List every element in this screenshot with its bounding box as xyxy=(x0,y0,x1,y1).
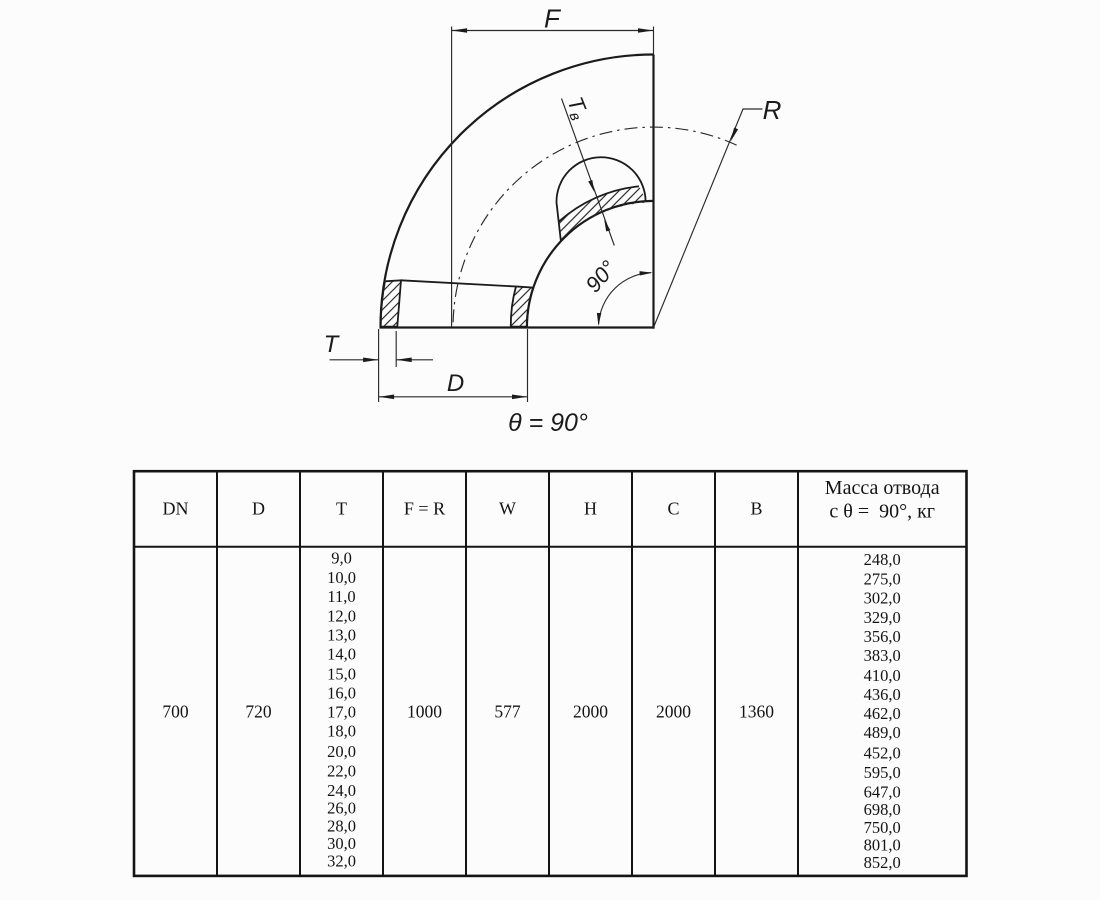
svg-text:θ = 90°: θ = 90° xyxy=(508,409,588,437)
svg-text:B: B xyxy=(750,499,762,519)
svg-text:852,0: 852,0 xyxy=(864,853,901,872)
svg-text:F = R: F = R xyxy=(404,499,445,519)
svg-text:2000: 2000 xyxy=(656,702,691,722)
svg-text:750,0: 750,0 xyxy=(864,818,901,837)
svg-text:26,0: 26,0 xyxy=(327,799,356,818)
svg-text:F: F xyxy=(544,4,562,34)
svg-text:20,0: 20,0 xyxy=(327,742,356,761)
svg-text:700: 700 xyxy=(162,702,189,722)
svg-text:10,0: 10,0 xyxy=(327,568,356,587)
svg-text:14,0: 14,0 xyxy=(327,645,356,664)
svg-text:356,0: 356,0 xyxy=(864,627,901,646)
svg-text:22,0: 22,0 xyxy=(327,761,356,780)
svg-text:11,0: 11,0 xyxy=(327,587,355,606)
svg-text:462,0: 462,0 xyxy=(864,704,901,723)
svg-text:с θ = 90°, кг: с θ = 90°, кг xyxy=(829,501,935,523)
svg-text:13,0: 13,0 xyxy=(327,626,356,645)
svg-text:30,0: 30,0 xyxy=(327,834,356,853)
svg-text:329,0: 329,0 xyxy=(864,608,901,627)
svg-text:248,0: 248,0 xyxy=(864,550,901,569)
svg-text:17,0: 17,0 xyxy=(327,702,356,721)
svg-text:W: W xyxy=(499,499,516,519)
svg-text:383,0: 383,0 xyxy=(864,646,901,665)
svg-text:C: C xyxy=(667,499,679,519)
svg-text:720: 720 xyxy=(245,702,272,722)
svg-text:1360: 1360 xyxy=(739,702,774,722)
svg-text:Масса отвода: Масса отвода xyxy=(825,477,940,499)
svg-text:D: D xyxy=(447,370,464,397)
svg-text:24,0: 24,0 xyxy=(327,781,356,800)
svg-text:452,0: 452,0 xyxy=(864,744,901,763)
svg-text:595,0: 595,0 xyxy=(864,763,901,782)
svg-text:302,0: 302,0 xyxy=(864,589,901,608)
svg-text:15,0: 15,0 xyxy=(327,664,356,683)
svg-text:647,0: 647,0 xyxy=(864,783,901,802)
svg-text:698,0: 698,0 xyxy=(864,800,901,819)
svg-text:32,0: 32,0 xyxy=(327,852,356,871)
svg-text:275,0: 275,0 xyxy=(864,569,901,588)
svg-text:801,0: 801,0 xyxy=(864,835,901,854)
svg-text:16,0: 16,0 xyxy=(327,684,356,703)
svg-text:R: R xyxy=(763,95,782,125)
svg-text:18,0: 18,0 xyxy=(327,722,356,741)
svg-text:28,0: 28,0 xyxy=(327,816,356,835)
svg-text:436,0: 436,0 xyxy=(864,685,901,704)
svg-text:489,0: 489,0 xyxy=(864,723,901,742)
svg-text:410,0: 410,0 xyxy=(864,666,901,685)
svg-text:T: T xyxy=(336,499,347,519)
svg-text:2000: 2000 xyxy=(573,702,608,722)
svg-text:H: H xyxy=(584,499,597,519)
svg-text:DN: DN xyxy=(163,499,189,519)
svg-text:577: 577 xyxy=(494,702,521,722)
svg-text:T: T xyxy=(324,331,341,358)
svg-text:D: D xyxy=(252,499,265,519)
svg-text:9,0: 9,0 xyxy=(331,549,352,568)
svg-text:12,0: 12,0 xyxy=(327,606,356,625)
svg-text:1000: 1000 xyxy=(407,702,442,722)
